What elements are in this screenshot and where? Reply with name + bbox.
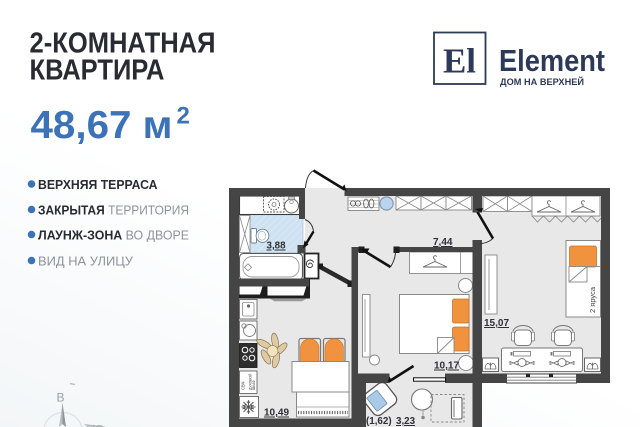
svg-text:ВЕРХНЯЯ ТЕРРАСА: ВЕРХНЯЯ ТЕРРАСА xyxy=(38,177,158,192)
svg-text:(1,62): (1,62) xyxy=(366,416,392,427)
svg-text:15,07: 15,07 xyxy=(484,318,509,329)
svg-text:El: El xyxy=(443,42,476,81)
svg-text:КВАРТИРА: КВАРТИРА xyxy=(30,55,165,87)
svg-text:В: В xyxy=(57,391,65,405)
svg-text:Ю: Ю xyxy=(93,424,104,427)
svg-text:СВЧ: СВЧ xyxy=(241,381,246,390)
svg-text:ШКАФ: ШКАФ xyxy=(252,380,256,390)
svg-text:7,44: 7,44 xyxy=(433,237,453,248)
svg-text:ДОМ НА ВЕРХНЕЙ: ДОМ НА ВЕРХНЕЙ xyxy=(500,76,584,87)
svg-text:10,17: 10,17 xyxy=(434,361,459,372)
svg-text:Element: Element xyxy=(499,43,605,78)
svg-text:ЗАКРЫТАЯ ТЕРРИТОРИЯ: ЗАКРЫТАЯ ТЕРРИТОРИЯ xyxy=(38,203,189,218)
svg-text:2 яруса: 2 яруса xyxy=(588,286,597,313)
svg-text:ВИД НА УЛИЦУ: ВИД НА УЛИЦУ xyxy=(38,254,134,269)
svg-text:3,88: 3,88 xyxy=(267,241,287,252)
svg-text:ЛАУНЖ-ЗОНА ВО ДВОРЕ: ЛАУНЖ-ЗОНА ВО ДВОРЕ xyxy=(38,228,189,243)
svg-text:48,67 м: 48,67 м xyxy=(31,104,173,147)
svg-text:3,23: 3,23 xyxy=(396,416,416,427)
svg-text:2: 2 xyxy=(177,103,190,130)
svg-text:10,49: 10,49 xyxy=(264,408,289,419)
